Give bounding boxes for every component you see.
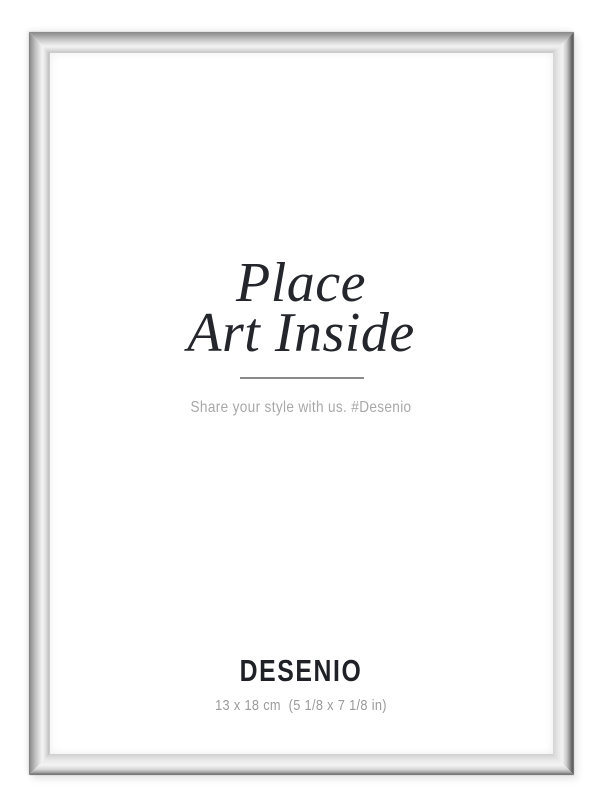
brand-logo: DESENIO	[60, 653, 542, 689]
product-photo: Place Art Inside Share your style with u…	[0, 0, 602, 810]
frame-top-rail	[29, 32, 574, 53]
divider-line	[240, 377, 364, 379]
insert-title: Place Art Inside	[0, 258, 602, 358]
title-line-2: Art Inside	[0, 308, 602, 358]
frame-bottom-rail	[29, 754, 574, 775]
tagline-text: Share your style with us. #Desenio	[45, 398, 557, 418]
title-line-1: Place	[0, 258, 602, 308]
dimensions-label: 13 x 18 cm (5 1/8 x 7 1/8 in)	[45, 697, 557, 715]
